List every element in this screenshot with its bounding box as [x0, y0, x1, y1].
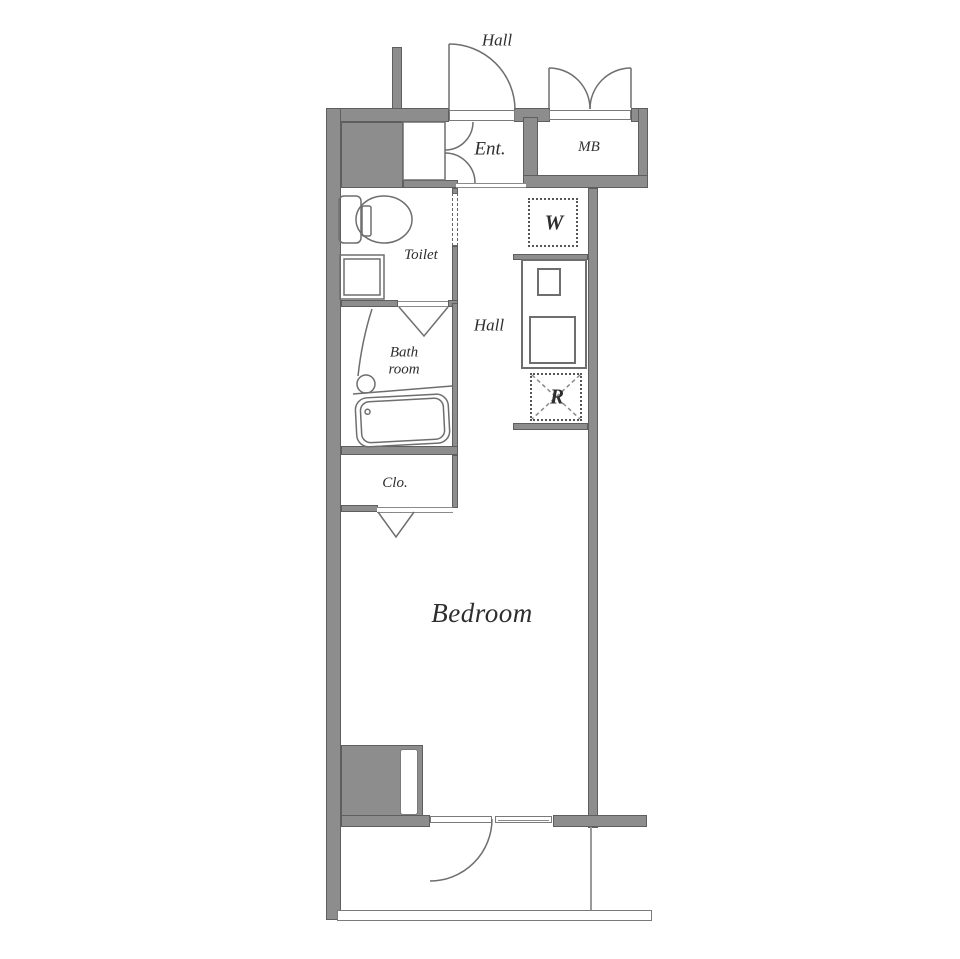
wall-top-stub [392, 47, 402, 109]
bathroom-label-line1: Bath [388, 345, 419, 362]
wall-outer-right [588, 188, 598, 828]
toilet-wall-top [403, 180, 458, 188]
wall-outer-left [326, 108, 341, 920]
toilet-sliding-door [452, 193, 458, 246]
bathroom-label-line2: room [388, 361, 419, 378]
hall-label: Hall [474, 317, 504, 336]
entrance-closet [403, 122, 475, 183]
kitchen-wall-upper [513, 254, 588, 260]
bathroom-wall-top-a [341, 300, 398, 307]
closet-wall-top [341, 446, 458, 455]
closet-folding-door [378, 512, 414, 537]
toilet-label: Toilet [404, 247, 438, 264]
bathroom-door-track [398, 301, 448, 307]
balcony-door-threshold [430, 816, 492, 823]
kitchen-wall-lower [513, 423, 588, 430]
toilet-sink-cabinet [340, 255, 384, 299]
wall-bottom-left [341, 815, 430, 827]
meter-box-label: MB [578, 139, 600, 156]
bathroom-label: Bath room [388, 345, 419, 378]
closet-door-track [377, 507, 453, 513]
meter-box-door-threshold [549, 110, 631, 120]
entrance-door-threshold [449, 110, 515, 121]
balcony-window [495, 816, 552, 823]
entrance-label: Ent. [474, 140, 505, 161]
meter-box-wall-bottom [523, 175, 648, 188]
wall-top-left [326, 108, 449, 122]
toilet-fixture [339, 196, 412, 243]
wall-bottom-right [553, 815, 647, 827]
closet-wall-right [452, 455, 458, 508]
closet-label: Clo. [382, 475, 407, 492]
entrance-door-swing [449, 44, 515, 110]
meter-box-double-door [549, 68, 631, 109]
washing-machine-label: W [545, 211, 564, 234]
bathtub [355, 394, 450, 448]
entrance-step-line [456, 183, 526, 188]
balcony-divider-line [590, 827, 592, 910]
bathroom-folding-door [399, 307, 448, 336]
balcony-door-swing [430, 819, 492, 881]
floor-plan: Hall Ent. MB W Toilet Hall Bath room R C… [0, 0, 960, 959]
closet-wall-bottom-stub [341, 505, 378, 512]
balcony-floor-slab [337, 910, 652, 921]
bedroom-label: Bedroom [431, 599, 532, 629]
toilet-wall-right-b [452, 246, 458, 304]
refrigerator-label: R [550, 385, 564, 408]
bathroom-wall-right [452, 303, 458, 453]
hall-top-label: Hall [482, 32, 512, 51]
kitchen-counter [522, 260, 586, 368]
pillar-slit-window [400, 749, 418, 815]
balcony-window-glass-line [498, 820, 549, 821]
entrance-shaft-block [341, 122, 403, 188]
